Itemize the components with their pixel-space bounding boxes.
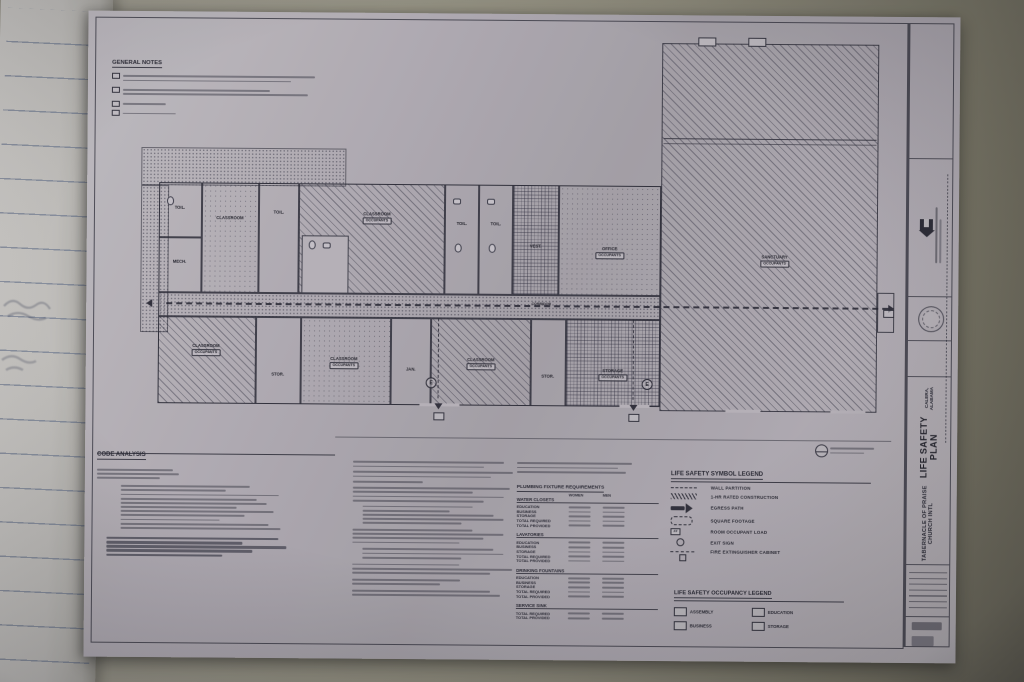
door-leaf [698, 37, 716, 46]
room-label: MECH. [173, 259, 187, 264]
text-line [352, 578, 460, 581]
room-label: TOIL. [175, 205, 186, 210]
text-line [352, 572, 490, 575]
text-line [352, 589, 490, 592]
occupancy-label: ASSEMBLY [690, 609, 714, 614]
text-line [352, 533, 503, 536]
code-paragraph [353, 471, 525, 478]
floor-plan: E E TOIL. MECH. CLASSROOM TOIL. CLASSROO… [89, 11, 961, 18]
text-line [363, 505, 473, 508]
architect-logo [913, 174, 950, 274]
room-toilet [478, 185, 513, 295]
text-line [830, 452, 864, 454]
text-line [120, 527, 280, 530]
room-label: TOIL. [274, 209, 285, 214]
handwriting-scribble [0, 288, 92, 408]
plumbing-row: TOTAL PROVIDED [516, 558, 658, 564]
text-line [123, 79, 291, 82]
text-line [123, 103, 166, 105]
text-line [121, 485, 250, 488]
code-paragraph [362, 548, 512, 559]
text-line [123, 112, 176, 114]
door-tag [628, 414, 639, 422]
door-opening [725, 410, 760, 413]
occupancy-swatch [674, 621, 687, 630]
photo-backdrop: GENERAL NOTES [0, 0, 1024, 682]
code-paragraph [352, 563, 524, 575]
text-line [352, 541, 459, 544]
plumbing-row: TOTAL PROVIDED [517, 523, 659, 529]
text-line [353, 499, 484, 502]
text-line [353, 487, 510, 490]
code-paragraph [353, 487, 525, 503]
legend-label: EGRESS PATH [711, 506, 744, 511]
sink-fixture [323, 242, 331, 248]
legend-item: SQUARE FOOTAGE [671, 516, 871, 527]
legend-label: SQUARE FOOTAGE [711, 518, 755, 523]
code-list [97, 469, 187, 480]
room-label: STOR. [271, 371, 284, 376]
text-line [123, 75, 315, 78]
drawing-sheet: GENERAL NOTES [83, 11, 960, 664]
wall-partition-symbol [671, 487, 711, 488]
room-toilet [258, 183, 299, 293]
room-area-symbol [671, 516, 711, 525]
exit-symbol: E [642, 379, 653, 390]
text-line [97, 469, 173, 471]
toilet-fixture [455, 243, 462, 252]
title-block: TABERNACLE OF PRAISE CHURCH INTL LIFE SA… [904, 23, 955, 647]
text-line [121, 502, 267, 505]
legend-item: ##ROOM OCCUPANT LOAD [670, 528, 870, 537]
room-storage [530, 319, 566, 406]
code-paragraph [352, 589, 524, 596]
text-line [363, 514, 494, 517]
legend-label: ROOM OCCUPANT LOAD [710, 529, 767, 534]
text-line [352, 594, 500, 597]
legend-item: EXIT SIGN [670, 538, 870, 548]
text-line [352, 529, 472, 532]
text-line [106, 541, 242, 545]
room-label: VEST. [530, 243, 542, 248]
toilet-fixture [309, 240, 316, 249]
canopy-hatch [141, 147, 346, 187]
text-line [121, 506, 237, 509]
door-tag [883, 310, 894, 318]
text-line [517, 462, 632, 465]
plumbing-section: LAVATORIESEDUCATIONBUSINESSSTORAGETOTAL … [516, 532, 658, 564]
text-line [362, 548, 493, 551]
occupancy-item: ASSEMBLY [674, 607, 752, 617]
exit-symbol: E [426, 377, 437, 388]
room-label: CLASSROOM [216, 215, 243, 220]
exit-sign-symbol [670, 538, 710, 546]
code-paragraph [353, 481, 456, 484]
room-label: CLASSROOMOCCUPANTS [192, 343, 221, 356]
plumbing-section-title: DRINKING FOUNTAINS [516, 568, 658, 575]
room-janitor [390, 318, 431, 405]
text-line [362, 557, 461, 560]
text-line [97, 477, 160, 479]
occupancy-swatch [752, 607, 765, 616]
text-line [121, 493, 279, 496]
code-text-column [352, 459, 525, 599]
text-line [353, 495, 504, 498]
plumbing-title: PLUMBING FIXTURE REQUIREMENTS [517, 485, 604, 493]
plumbing-section-title: LAVATORIES [516, 532, 658, 539]
plumbing-column-header: MEN [603, 494, 637, 498]
project-name: TABERNACLE OF PRAISE CHURCH INTL [922, 480, 935, 566]
text-line [830, 448, 874, 450]
occupant-load-symbol: ## [670, 528, 710, 535]
house-logo-icon [920, 219, 933, 230]
room-classroom [201, 182, 259, 292]
room-office [558, 185, 661, 296]
room-label: OFFICEOCCUPANTS [595, 246, 624, 259]
text-line [106, 553, 222, 557]
symbol-legend-title: LIFE SAFETY SYMBOL LEGEND [671, 471, 763, 480]
text-line [517, 467, 618, 470]
corridor-label: CORRIDOR [531, 302, 551, 307]
text-line [352, 567, 512, 570]
table-note [517, 462, 637, 473]
egress-arrow-south [629, 405, 637, 411]
text-line [363, 509, 450, 511]
legend-item: 1-HR RATED CONSTRUCTION [671, 494, 871, 502]
room-label: JAN. [406, 366, 416, 371]
text-line [121, 514, 245, 517]
room-label: STORAGEOCCUPANTS [598, 368, 627, 381]
room-label: STOR. [541, 374, 554, 379]
text-line [123, 93, 308, 96]
room-toilet [444, 184, 479, 294]
text-line [353, 491, 473, 494]
door-tag [433, 412, 444, 420]
note-text [123, 100, 193, 107]
legend-label: EXIT SIGN [710, 540, 734, 545]
occupancy-swatch [752, 621, 765, 630]
occupancy-item: BUSINESS [674, 621, 752, 631]
occupancy-swatch [674, 607, 687, 616]
text-line [363, 518, 504, 521]
room-label: CLASSROOMOCCUPANTS [363, 211, 392, 224]
code-paragraph [352, 578, 472, 585]
plumbing-section-title: WATER CLOSETS [517, 497, 659, 504]
note-text [123, 110, 189, 117]
egress-arrow-south [434, 403, 442, 409]
occupancy-label: STORAGE [768, 623, 789, 628]
toilet-fixture [167, 196, 174, 205]
text-line [353, 481, 423, 483]
occupancy-legend-title: LIFE SAFETY OCCUPANCY LEGEND [674, 590, 772, 599]
text-line [106, 549, 252, 553]
sink-fixture [453, 198, 461, 204]
project-title-group: TABERNACLE OF PRAISE CHURCH INTL LIFE SA… [906, 382, 950, 566]
plumbing-row: TOTAL PROVIDED [516, 615, 658, 621]
room-sanctuary [659, 43, 879, 413]
note-text [123, 87, 333, 99]
text-line [353, 471, 513, 474]
door-opening [830, 410, 865, 413]
egress-arrow-west [146, 299, 152, 307]
text-line [121, 523, 269, 526]
toilet-fixture [489, 244, 496, 253]
text-line [352, 563, 459, 566]
room-label: TOIL. [457, 221, 468, 226]
occupancy-label: BUSINESS [690, 623, 712, 628]
plumbing-section: WATER CLOSETSEDUCATIONBUSINESSSTORAGETOT… [517, 497, 659, 529]
code-paragraph [352, 529, 524, 545]
room-storage-large [565, 319, 660, 407]
room-mech [158, 237, 201, 292]
text-line [363, 522, 462, 525]
sheet-title: LIFE SAFETY PLAN [918, 414, 939, 480]
architect-seal [918, 306, 944, 332]
plumbing-section-title: SERVICE SINK [516, 603, 658, 610]
text-line [106, 545, 286, 549]
occupancy-label: EDUCATION [768, 609, 793, 614]
code-analysis-block: CODE ANALYSIS [96, 443, 335, 560]
drawing-callout-icon [815, 444, 828, 457]
code-paragraph [353, 461, 525, 468]
occupancy-item: STORAGE [752, 621, 830, 631]
issue-date-smudge [912, 636, 934, 646]
plumbing-block: PLUMBING FIXTURE REQUIREMENTS WOMENMEN W… [516, 460, 659, 626]
sink-fixture [487, 199, 495, 205]
note-text [123, 73, 323, 85]
revision-table [909, 572, 947, 612]
legend-label: 1-HR RATED CONSTRUCTION [711, 494, 778, 500]
rated-construction-symbol [671, 494, 711, 500]
text-line [353, 475, 491, 478]
sanctuary-label: SANCTUARYOCCUPANTS [760, 255, 789, 268]
text-line [362, 552, 503, 555]
sheet-number-smudge [912, 622, 942, 630]
room-label: CLASSROOMOCCUPANTS [329, 356, 358, 369]
legend-label: WALL PARTITION [711, 486, 751, 491]
occupancy-item: EDUCATION [752, 607, 830, 617]
legend-item: WALL PARTITION [671, 485, 871, 492]
text-line [352, 537, 483, 540]
room-storage [255, 317, 301, 404]
text-line [106, 537, 278, 541]
code-list [120, 485, 290, 530]
text-line [97, 473, 179, 475]
plumbing-section: DRINKING FOUNTAINSEDUCATIONBUSINESSSTORA… [516, 568, 658, 600]
text-line [121, 498, 257, 501]
occupancy-legend: LIFE SAFETY OCCUPANCY LEGEND ASSEMBLYEDU… [674, 581, 854, 633]
project-location: CALERA, ALABAMA [924, 382, 934, 414]
code-bold-note [106, 537, 306, 558]
text-line [121, 510, 274, 513]
plumbing-section: SERVICE SINKTOTAL REQUIREDTOTAL PROVIDED [516, 603, 658, 621]
text-line [352, 583, 440, 585]
egress-path-symbol [671, 503, 711, 513]
text-line [353, 461, 504, 464]
fire-extinguisher-symbol [670, 551, 710, 552]
room-label: TOIL. [491, 221, 502, 226]
text-line [121, 489, 226, 492]
general-notes-block: GENERAL NOTES [112, 51, 363, 119]
general-notes-title: GENERAL NOTES [112, 60, 162, 68]
door-leaf [748, 38, 766, 47]
drawing-callout-text [830, 445, 878, 456]
room-label: CLASSROOMOCCUPANTS [466, 357, 495, 370]
symbol-legend: LIFE SAFETY SYMBOL LEGEND WALL PARTITION… [670, 462, 871, 559]
text-line [121, 519, 220, 522]
plumbing-row: TOTAL PROVIDED [516, 594, 658, 600]
room-classroom [157, 316, 256, 404]
legend-label: FIRE EXTINGUISHER CABINET [710, 550, 780, 556]
text-line [123, 89, 270, 92]
plumbing-column-header: WOMEN [569, 493, 603, 497]
code-paragraph [363, 505, 513, 525]
legend-item: EGRESS PATH [671, 503, 871, 515]
text-line [517, 471, 626, 474]
room-vestibule [512, 185, 559, 295]
legend-item: FIRE EXTINGUISHER CABINET [670, 549, 870, 556]
text-line [353, 465, 484, 468]
